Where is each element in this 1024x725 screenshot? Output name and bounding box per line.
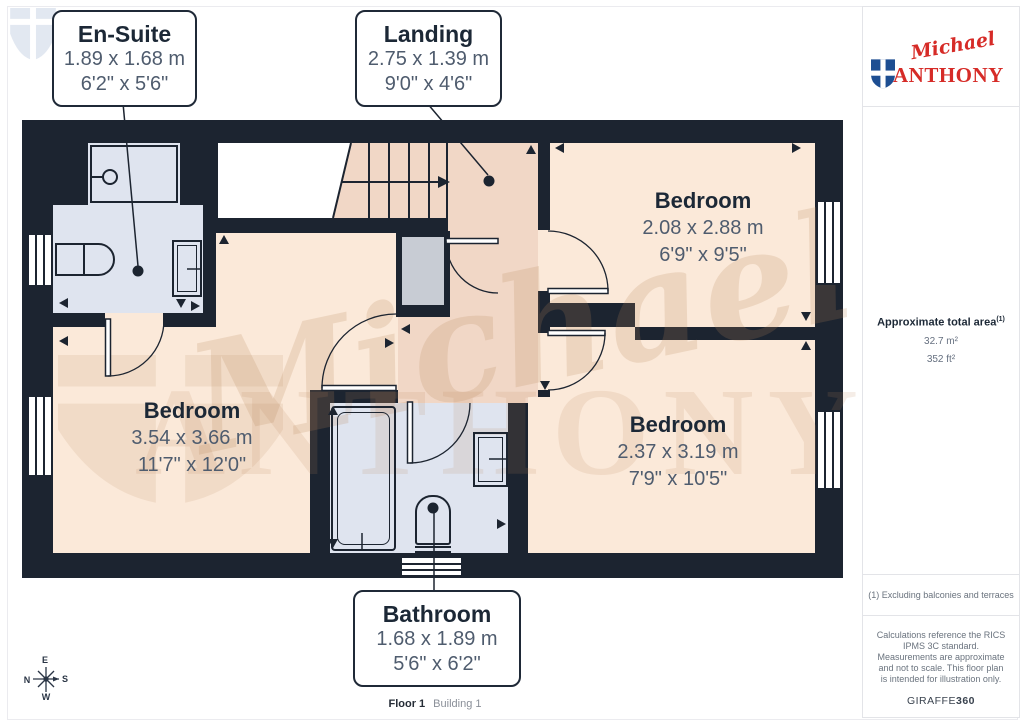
total-area-title: Approximate total area(1)	[877, 316, 1005, 329]
compass-icon: E N S W	[18, 640, 78, 704]
callout-imperial: 6'2" x 5'6"	[81, 72, 168, 97]
ensuite-window	[27, 233, 53, 287]
total-area-title-text: Approximate total area	[877, 317, 996, 329]
bedroom-bottomright-window	[816, 410, 842, 490]
logo-script-text: Michael	[902, 26, 1004, 65]
bedroom-left-window	[27, 395, 53, 477]
room-imperial: 7'9" x 10'5"	[558, 466, 798, 493]
compass-top: E	[42, 655, 48, 665]
stair-void	[218, 143, 351, 218]
logo-shield-icon	[871, 59, 895, 89]
landing-floor-upper	[448, 143, 538, 233]
giraffe360-credit: GIRAFFE360	[863, 695, 1019, 707]
stair-tread	[408, 143, 410, 218]
toilet-bathroom	[415, 495, 451, 545]
room-name: Bedroom	[558, 411, 798, 439]
sink-ensuite	[172, 240, 202, 297]
callout-metric: 1.68 x 1.89 m	[376, 627, 497, 652]
total-area-note-ref: (1)	[996, 316, 1005, 323]
bedroom-bottomright-door-gap	[538, 333, 550, 390]
bedroom-topright-floor-ext	[635, 303, 815, 327]
callout-metric: 1.89 x 1.68 m	[64, 47, 185, 72]
stair-tread	[428, 143, 430, 218]
callout-imperial: 9'0" x 4'6"	[385, 72, 472, 97]
sink-bathroom	[473, 432, 508, 487]
bedroom-topright-door-gap	[538, 230, 550, 291]
compass-bottom: W	[42, 692, 51, 702]
corner-shield-watermark	[10, 8, 56, 60]
floor-label: Floor 1	[389, 698, 426, 710]
floor-indicator: Floor 1Building 1	[340, 698, 530, 710]
ensuite-door-gap	[105, 313, 163, 327]
room-label-bedroom-left: Bedroom 3.54 x 3.66 m 11'7" x 12'0"	[72, 397, 312, 479]
callout-landing: Landing 2.75 x 1.39 m 9'0" x 4'6"	[355, 10, 502, 107]
compass-right: S	[62, 674, 68, 684]
area-footnote: (1) Excluding balconies and terraces	[863, 575, 1019, 616]
credit-suffix: 360	[956, 695, 975, 707]
shower-enclosure	[90, 145, 178, 203]
compass-left: N	[24, 675, 31, 685]
callout-title: Bathroom	[383, 601, 492, 627]
logo-caps-text: ANTHONY	[893, 63, 1004, 88]
room-metric: 2.08 x 2.88 m	[583, 215, 823, 242]
floorplan-page: Michael ANTHONY	[0, 0, 1024, 725]
agency-logo: Michael ANTHONY	[863, 7, 1019, 107]
room-imperial: 6'9" x 9'5"	[583, 242, 823, 269]
total-area-imperial: 352 ft²	[927, 354, 955, 365]
cupboard	[402, 237, 444, 305]
callout-title: Landing	[384, 21, 473, 47]
total-area-metric: 32.7 m²	[924, 336, 958, 347]
building-label: Building 1	[433, 698, 481, 710]
callout-title: En-Suite	[78, 21, 171, 47]
bathroom-door-gap	[407, 390, 473, 403]
room-name: Bedroom	[72, 397, 312, 425]
credit-name: GIRAFFE	[907, 695, 956, 707]
toilet-ensuite	[55, 243, 115, 276]
room-label-bedroom-topright: Bedroom 2.08 x 2.88 m 6'9" x 9'5"	[583, 187, 823, 269]
callout-metric: 2.75 x 1.39 m	[368, 47, 489, 72]
total-area-panel: Approximate total area(1) 32.7 m² 352 ft…	[863, 107, 1019, 575]
room-metric: 2.37 x 3.19 m	[558, 439, 798, 466]
callout-bathroom: Bathroom 1.68 x 1.89 m 5'6" x 6'2"	[353, 590, 521, 687]
toilet-bathroom-base	[415, 546, 451, 553]
room-name: Bedroom	[583, 187, 823, 215]
stair-tread	[368, 143, 370, 218]
callout-ensuite: En-Suite 1.89 x 1.68 m 6'2" x 5'6"	[52, 10, 197, 107]
stair-tread	[388, 143, 390, 218]
room-imperial: 11'7" x 12'0"	[72, 452, 312, 479]
sidebar: Michael ANTHONY Approximate total area(1…	[862, 6, 1020, 718]
room-label-bedroom-bottomright: Bedroom 2.37 x 3.19 m 7'9" x 10'5"	[558, 411, 798, 493]
bedroom-bottomright-strip	[528, 397, 550, 553]
disclaimer-text: Calculations reference the RICS IPMS 3C …	[863, 616, 1019, 685]
bathroom-window	[400, 556, 463, 577]
callout-imperial: 5'6" x 6'2"	[393, 652, 480, 677]
stairs	[333, 143, 448, 218]
bathtub	[331, 406, 396, 551]
room-metric: 3.54 x 3.66 m	[72, 425, 312, 452]
